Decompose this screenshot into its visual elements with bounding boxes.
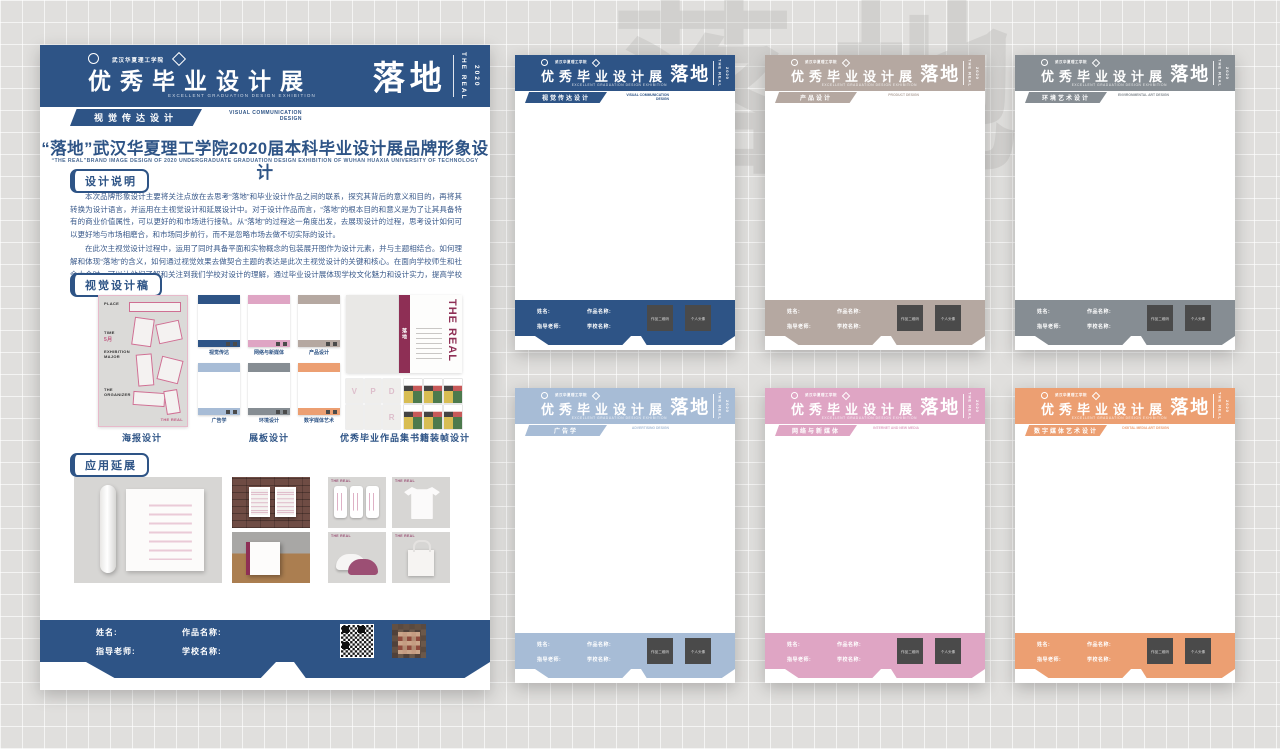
category-tab-en: DIGITAL MEDIA ART DESIGN <box>1113 426 1169 430</box>
brand-logo-year: 2020 <box>1225 67 1229 80</box>
template-header: 武汉华夏理工学院 优秀毕业设计展 EXCELLENT GRADUATION DE… <box>765 388 985 424</box>
brand-logo-zh: 落地 <box>920 392 960 419</box>
name-label: 姓名: <box>1037 308 1050 315</box>
template-body <box>765 105 985 300</box>
brand-logo: 落地THE REAL2020 <box>670 59 729 87</box>
thumb-organizer-label: THE ORGANIZER <box>104 388 128 398</box>
avatar-placeholder: 个人头像 <box>685 305 711 331</box>
mockup-caption: THE REAL <box>395 534 415 538</box>
mini-board <box>198 363 240 415</box>
category-tab-row: 数字媒体艺术设计 DIGITAL MEDIA ART DESIGN <box>1015 424 1235 438</box>
work-cover <box>424 379 442 403</box>
logo-row: 武汉华夏理工学院 <box>791 392 849 399</box>
avatar-placeholder: 个人头像 <box>935 638 961 664</box>
decor <box>246 542 280 575</box>
brand-logo-en: THE REAL <box>1217 59 1221 87</box>
mini-board <box>198 295 240 347</box>
name-label: 姓名: <box>537 641 550 648</box>
template-body <box>1015 105 1235 300</box>
exhibition-title-en: EXCELLENT GRADUATION DESIGN EXHIBITION <box>791 416 917 420</box>
decor <box>249 487 270 517</box>
exhibition-title-en: EXCELLENT GRADUATION DESIGN EXHIBITION <box>1041 416 1167 420</box>
work-name-label: 作品名称: <box>1087 641 1111 648</box>
exhibition-title-en: EXCELLENT GRADUATION DESIGN EXHIBITION <box>791 83 917 87</box>
template-footer: 姓名: 作品名称: 指导老师: 学校名称: 作品二维码 个人头像 <box>765 633 985 669</box>
avatar-placeholder: 个人头像 <box>935 305 961 331</box>
book-back-cover <box>346 295 399 373</box>
category-tab-en: VISUAL COMMUNICATION DESIGN <box>613 93 669 102</box>
mini-board-label: 网络与新媒体 <box>248 349 290 356</box>
category-tab-en: ENVIRONMENTAL ART DESIGN <box>1113 93 1169 97</box>
brand-logo-year: 2020 <box>975 400 979 413</box>
main-poster[interactable]: 武汉华夏理工学院 优秀毕业设计展 EXCELLENT GRADUATION DE… <box>40 45 490 690</box>
footer-cut-strip <box>515 336 735 350</box>
logo-row: 武汉华夏理工学院 <box>541 392 599 399</box>
mini-board <box>248 295 290 347</box>
decor <box>131 317 155 348</box>
logo-row: 武汉华夏理工学院 <box>541 59 599 66</box>
book-page: P <box>365 379 382 403</box>
school-name-label: 学校名称: <box>837 323 861 330</box>
qr-placeholder: 作品二维码 <box>647 638 673 664</box>
mockup-standing-book <box>232 532 310 583</box>
category-tab-en: ADVERTISING DESIGN <box>613 426 669 430</box>
book-spine: 落地 <box>399 295 410 373</box>
brand-logo-en: THE REAL <box>1217 392 1221 420</box>
logo-row: 武汉华夏理工学院 <box>791 59 849 66</box>
work-cover <box>424 405 442 429</box>
decor <box>129 302 181 312</box>
advisor-label: 指导老师: <box>787 323 811 330</box>
mini-board-label: 广告学 <box>198 417 240 424</box>
avatar-placeholder: 个人头像 <box>1185 305 1211 331</box>
work-name-label: 作品名称: <box>587 308 611 315</box>
book-cover-spread: 落地 THE REAL <box>346 295 462 373</box>
school-name-label: 学校名称: <box>1087 656 1111 663</box>
template-body <box>515 438 735 633</box>
mini-board-label: 产品设计 <box>298 349 340 356</box>
category-tab-row: 产品设计 PRODUCT DESIGN <box>765 91 985 105</box>
category-tab: 环境艺术设计 <box>1025 92 1107 103</box>
work-cover <box>404 405 422 429</box>
category-tab: 广告学 <box>525 425 607 436</box>
brand-logo: 落地THE REAL2020 <box>920 392 979 420</box>
decor <box>156 356 183 385</box>
advisor-label: 指导老师: <box>1037 656 1061 663</box>
avatar-placeholder: 个人头像 <box>685 638 711 664</box>
template-header: 武汉华夏理工学院 优秀毕业设计展 EXCELLENT GRADUATION DE… <box>1015 388 1235 424</box>
template-poster-environment-art[interactable]: 武汉华夏理工学院 优秀毕业设计展 EXCELLENT GRADUATION DE… <box>1015 55 1235 350</box>
work-title-en: “THE REAL”BRAND IMAGE DESIGN OF 2020 UND… <box>40 158 490 164</box>
advisor-label: 指导老师: <box>537 323 561 330</box>
mockup-caption: THE REAL <box>395 479 415 483</box>
brand-logo: 落地THE REAL2020 <box>670 392 729 420</box>
section-badge-design-notes: 设计说明 <box>70 169 149 193</box>
mini-board <box>248 363 290 415</box>
exhibition-title-en: EXCELLENT GRADUATION DESIGN EXHIBITION <box>88 93 316 98</box>
template-footer: 姓名: 作品名称: 指导老师: 学校名称: 作品二维码 个人头像 <box>515 633 735 669</box>
name-label: 姓名: <box>96 627 118 638</box>
brand-divider <box>453 55 454 97</box>
category-tab: 产品设计 <box>775 92 857 103</box>
brand-logo-year: 2020 <box>1225 400 1229 413</box>
school-name-label: 学校名称: <box>587 323 611 330</box>
main-poster-header: 武汉华夏理工学院 优秀毕业设计展 EXCELLENT GRADUATION DE… <box>40 45 490 107</box>
footer-cut-strip <box>515 669 735 683</box>
decor <box>100 485 116 573</box>
book-page: V <box>346 379 363 403</box>
brand-logo-zh: 落地 <box>670 392 710 419</box>
qr-placeholder: 作品二维码 <box>897 305 923 331</box>
book-page <box>346 405 363 429</box>
book-title: THE REAL <box>446 299 458 362</box>
brand-logo-zh: 落地 <box>373 52 447 100</box>
name-label: 姓名: <box>787 641 800 648</box>
decor <box>126 489 204 571</box>
brand-logo: 落地 THE REAL 2020 <box>373 52 480 101</box>
template-poster-advertising[interactable]: 武汉华夏理工学院 优秀毕业设计展 EXCELLENT GRADUATION DE… <box>515 388 735 683</box>
decor <box>294 662 490 678</box>
brand-logo-en: THE REAL <box>460 52 467 101</box>
template-poster-visual-communication[interactable]: 武汉华夏理工学院 优秀毕业设计展 EXCELLENT GRADUATION DE… <box>515 55 735 350</box>
work-name-label: 作品名称: <box>587 641 611 648</box>
advisor-label: 指导老师: <box>537 656 561 663</box>
decor <box>404 487 440 519</box>
mini-board-label: 视觉传达 <box>198 349 240 356</box>
section-badge-applications: 应用延展 <box>70 453 149 477</box>
category-tab: 数字媒体艺术设计 <box>1025 425 1107 436</box>
school-name-label: 学校名称: <box>587 656 611 663</box>
main-poster-footer: 姓名: 作品名称: 指导老师: 学校名称: <box>40 620 490 662</box>
brand-logo-year: 2020 <box>473 65 480 87</box>
mockup-caps: THE REAL <box>328 532 386 583</box>
template-footer: 姓名: 作品名称: 指导老师: 学校名称: 作品二维码 个人头像 <box>515 300 735 336</box>
qr-placeholder: 作品二维码 <box>1147 638 1173 664</box>
template-poster-product-design[interactable]: 武汉华夏理工学院 优秀毕业设计展 EXCELLENT GRADUATION DE… <box>765 55 985 350</box>
template-body <box>515 105 735 300</box>
book-page <box>365 405 382 429</box>
template-header: 武汉华夏理工学院 优秀毕业设计展 EXCELLENT GRADUATION DE… <box>515 55 735 91</box>
decor <box>275 487 296 517</box>
template-header: 武汉华夏理工学院 优秀毕业设计展 EXCELLENT GRADUATION DE… <box>1015 55 1235 91</box>
exhibition-title-en: EXCELLENT GRADUATION DESIGN EXHIBITION <box>1041 83 1167 87</box>
mockup-tshirt: THE REAL <box>392 477 450 528</box>
avatar-placeholder: 个人头像 <box>1185 638 1211 664</box>
category-tab-row: 视觉传达设计 VISUAL COMMUNICATION DESIGN <box>40 107 490 129</box>
qr-code <box>340 624 374 658</box>
brand-logo: 落地THE REAL2020 <box>920 59 979 87</box>
template-poster-digital-media[interactable]: 武汉华夏理工学院 优秀毕业设计展 EXCELLENT GRADUATION DE… <box>1015 388 1235 683</box>
work-cover <box>404 379 422 403</box>
school-name: 武汉华夏理工学院 <box>1055 393 1087 398</box>
brand-logo-year: 2020 <box>725 400 729 413</box>
mockup-poster-roll <box>74 477 222 583</box>
template-footer: 姓名: 作品名称: 指导老师: 学校名称: 作品二维码 个人头像 <box>1015 633 1235 669</box>
footer-cut-strip <box>40 662 490 690</box>
decor <box>348 559 378 575</box>
brand-logo-en: THE REAL <box>967 59 971 87</box>
mockup-framed-posters <box>232 477 310 528</box>
category-tab-row: 视觉传达设计 VISUAL COMMUNICATION DESIGN <box>515 91 735 105</box>
brand-logo: 落地THE REAL2020 <box>1170 392 1229 420</box>
category-tab-row: 环境艺术设计 ENVIRONMENTAL ART DESIGN <box>1015 91 1235 105</box>
book-page: D <box>383 379 400 403</box>
template-body <box>765 438 985 633</box>
mini-board <box>298 295 340 347</box>
book-design-label: 优秀毕业作品集书籍装帧设计 <box>340 431 470 444</box>
category-tab-en: VISUAL COMMUNICATION DESIGN <box>210 110 302 123</box>
school-name-label: 学校名称: <box>837 656 861 663</box>
school-name: 武汉华夏理工学院 <box>555 393 587 398</box>
school-name: 武汉华夏理工学院 <box>805 60 837 65</box>
exhibition-title-en: EXCELLENT GRADUATION DESIGN EXHIBITION <box>541 416 667 420</box>
category-tab-row: 网络与新媒体 INTERNET AND NEW MEDIA <box>765 424 985 438</box>
decor <box>366 486 379 518</box>
template-footer: 姓名: 作品名称: 指导老师: 学校名称: 作品二维码 个人头像 <box>765 300 985 336</box>
category-tab: 视觉传达设计 <box>70 109 202 126</box>
mockup-caption: THE REAL <box>331 534 351 538</box>
logo-row: 武汉华夏理工学院 <box>1041 392 1099 399</box>
qr-placeholder: 作品二维码 <box>897 638 923 664</box>
work-name-label: 作品名称: <box>1087 308 1111 315</box>
work-cover <box>444 405 462 429</box>
section-badge-visual-drafts: 视觉设计稿 <box>70 273 162 297</box>
qr-placeholder: 作品二维码 <box>1147 305 1173 331</box>
work-name-label: 作品名称: <box>182 627 222 638</box>
name-label: 姓名: <box>1037 641 1050 648</box>
thumb-place-label: PLACE <box>104 301 119 306</box>
brand-logo-year: 2020 <box>725 67 729 80</box>
decor <box>334 486 347 518</box>
decor <box>86 662 276 678</box>
template-body <box>1015 438 1235 633</box>
footer-cut-strip <box>765 336 985 350</box>
work-cover <box>444 379 462 403</box>
name-label: 姓名: <box>537 308 550 315</box>
decor <box>408 550 434 576</box>
thumb-major-label: EXHIBITION MAJOR <box>104 350 128 360</box>
decor <box>133 391 166 407</box>
work-name-label: 作品名称: <box>837 308 861 315</box>
brand-logo-en: THE REAL <box>967 392 971 420</box>
brand-logo: 落地THE REAL2020 <box>1170 59 1229 87</box>
category-tab-en: INTERNET AND NEW MEDIA <box>863 426 919 430</box>
brand-logo-zh: 落地 <box>670 59 710 86</box>
template-poster-new-media[interactable]: 武汉华夏理工学院 优秀毕业设计展 EXCELLENT GRADUATION DE… <box>765 388 985 683</box>
decor <box>136 353 155 386</box>
book-page: R <box>383 405 400 429</box>
brand-logo-en: THE REAL <box>717 59 721 87</box>
thumb-brand-label: THE REAL <box>161 417 183 422</box>
advisor-label: 指导老师: <box>96 646 136 657</box>
category-tab: 网络与新媒体 <box>775 425 857 436</box>
mockup-tote-bag: THE REAL <box>392 532 450 583</box>
decor <box>350 486 363 518</box>
school-name: 武汉华夏理工学院 <box>1055 60 1087 65</box>
template-footer: 姓名: 作品名称: 指导老师: 学校名称: 作品二维码 个人头像 <box>1015 300 1235 336</box>
category-tab: 视觉传达设计 <box>525 92 607 103</box>
avatar-photo <box>392 624 426 658</box>
brand-logo-zh: 落地 <box>920 59 960 86</box>
school-name: 武汉华夏理工学院 <box>555 60 587 65</box>
name-label: 姓名: <box>787 308 800 315</box>
advisor-label: 指导老师: <box>787 656 811 663</box>
brand-logo-zh: 落地 <box>1170 59 1210 86</box>
mini-board-label: 数字媒体艺术 <box>298 417 340 424</box>
work-name-label: 作品名称: <box>837 641 861 648</box>
design-notes-paragraph: 本次品牌形象设计主要将关注点放在去思考“落地”和毕业设计作品之间的联系，探究其背… <box>70 191 462 241</box>
poster-design-label: 海报设计 <box>98 431 186 444</box>
mockup-caption: THE REAL <box>331 479 351 483</box>
mini-board <box>298 363 340 415</box>
book-front-cover: THE REAL <box>410 295 462 373</box>
logo-row: 武汉华夏理工学院 <box>1041 59 1099 66</box>
school-name-label: 学校名称: <box>1087 323 1111 330</box>
advisor-label: 指导老师: <box>1037 323 1061 330</box>
boards-design-label: 展板设计 <box>198 431 340 444</box>
brand-logo-zh: 落地 <box>1170 392 1210 419</box>
qr-placeholder: 作品二维码 <box>647 305 673 331</box>
decor <box>163 389 181 415</box>
exhibition-title: 优秀毕业设计展 <box>88 62 312 96</box>
footer-cut-strip <box>1015 669 1235 683</box>
work-covers-grid <box>404 379 462 429</box>
poster-design-thumbnail: PLACE TIME 5月 EXHIBITION MAJOR THE ORGAN… <box>98 295 188 427</box>
template-header: 武汉华夏理工学院 优秀毕业设计展 EXCELLENT GRADUATION DE… <box>765 55 985 91</box>
mini-board-label: 环境设计 <box>248 417 290 424</box>
school-name: 武汉华夏理工学院 <box>805 393 837 398</box>
footer-cut-strip <box>1015 336 1235 350</box>
category-tab-row: 广告学 ADVERTISING DESIGN <box>515 424 735 438</box>
footer-cut-strip <box>765 669 985 683</box>
decor <box>155 320 183 345</box>
mockup-phone-cases: THE REAL <box>328 477 386 528</box>
category-tab-en: PRODUCT DESIGN <box>863 93 919 97</box>
exhibition-title-en: EXCELLENT GRADUATION DESIGN EXHIBITION <box>541 83 667 87</box>
decor <box>416 325 442 359</box>
school-name-label: 学校名称: <box>182 646 222 657</box>
thumb-time-label: TIME <box>104 330 115 335</box>
book-pages-grid: V P D R <box>346 379 400 429</box>
brand-logo-en: THE REAL <box>717 392 721 420</box>
template-header: 武汉华夏理工学院 优秀毕业设计展 EXCELLENT GRADUATION DE… <box>515 388 735 424</box>
brand-logo-year: 2020 <box>975 67 979 80</box>
thumb-month-label: 5月 <box>104 336 112 343</box>
